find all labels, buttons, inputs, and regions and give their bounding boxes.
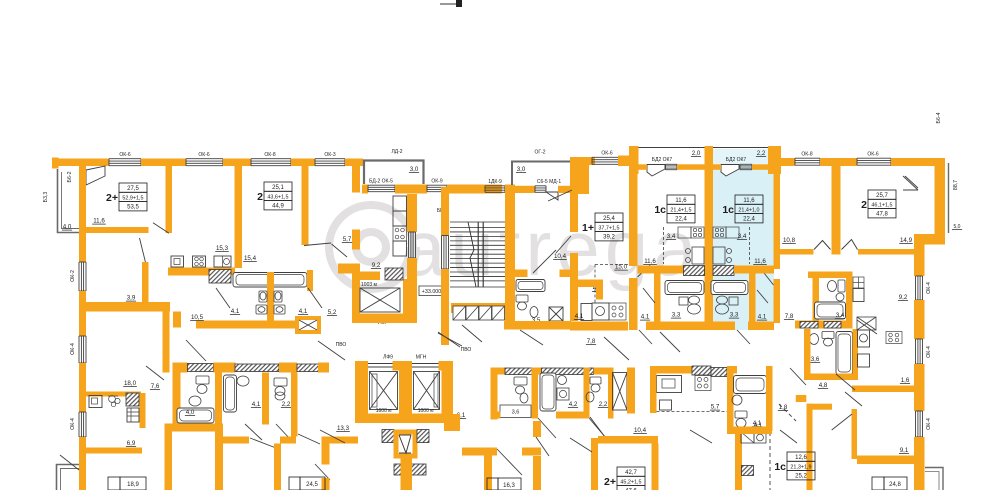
svg-text:1000 кг: 1000 кг [418, 408, 435, 414]
svg-text:С6-5 МД-1: С6-5 МД-1 [537, 179, 561, 185]
svg-text:ОК-8: ОК-8 [264, 152, 275, 158]
svg-text:3,9: 3,9 [127, 295, 136, 302]
svg-text:7,8: 7,8 [587, 338, 596, 345]
svg-text:9,2: 9,2 [899, 294, 908, 301]
svg-text:11,6: 11,6 [754, 258, 766, 265]
svg-text:ОК-6: ОК-6 [867, 152, 878, 158]
svg-text:ОК-6: ОК-6 [601, 151, 612, 157]
svg-text:46,1+1,5: 46,1+1,5 [871, 202, 892, 208]
svg-text:2,2: 2,2 [757, 150, 766, 157]
svg-text:10,4: 10,4 [554, 253, 567, 260]
svg-text:3,3: 3,3 [672, 312, 681, 319]
svg-text:4,0: 4,0 [186, 409, 195, 416]
svg-text:7,8: 7,8 [785, 313, 794, 320]
svg-text:10,5: 10,5 [191, 314, 204, 321]
svg-text:4,1: 4,1 [299, 308, 308, 315]
svg-text:21,4+1,0: 21,4+1,0 [738, 207, 759, 213]
svg-text:4,1: 4,1 [753, 420, 762, 427]
svg-text:3,4: 3,4 [836, 312, 845, 319]
svg-text:2,2: 2,2 [282, 401, 291, 408]
svg-text:25,1: 25,1 [272, 185, 284, 191]
svg-text:1с: 1с [722, 204, 734, 216]
svg-text:7,6: 7,6 [151, 383, 160, 390]
svg-text:ПВО: ПВО [336, 342, 347, 348]
svg-text:4,1: 4,1 [758, 314, 767, 321]
svg-text:ОК-6: ОК-6 [198, 152, 209, 158]
svg-text:2,2: 2,2 [599, 401, 608, 408]
svg-text:16,3: 16,3 [503, 483, 515, 489]
svg-text:27,5: 27,5 [127, 186, 139, 192]
svg-text:4,1: 4,1 [252, 401, 261, 408]
svg-text:Б6-4: Б6-4 [936, 112, 942, 123]
svg-text:5,0: 5,0 [954, 224, 961, 230]
svg-text:3,6: 3,6 [512, 410, 520, 416]
svg-text:53,5: 53,5 [127, 205, 139, 211]
svg-text:47,8: 47,8 [876, 212, 888, 218]
svg-text:4,1: 4,1 [575, 313, 584, 320]
svg-text:10,8: 10,8 [783, 237, 796, 244]
svg-text:1003 м: 1003 м [361, 282, 378, 288]
svg-text:15,4: 15,4 [244, 255, 257, 262]
svg-text:3,6: 3,6 [811, 356, 820, 363]
svg-text:21,4+1,5: 21,4+1,5 [670, 207, 691, 213]
svg-text:ОК-3: ОК-3 [324, 152, 335, 158]
svg-text:13,3: 13,3 [337, 425, 350, 432]
svg-text:4,0: 4,0 [63, 224, 72, 231]
svg-text:5,7: 5,7 [711, 404, 720, 411]
svg-text:2: 2 [257, 191, 263, 203]
svg-text:1+: 1+ [582, 222, 594, 234]
svg-text:11,6: 11,6 [675, 198, 687, 204]
svg-text:11,6: 11,6 [93, 218, 105, 225]
svg-text:44,9: 44,9 [272, 204, 284, 210]
svg-text:37,7+1,5: 37,7+1,5 [598, 225, 619, 231]
svg-text:12,6: 12,6 [795, 455, 807, 461]
svg-text:1,8: 1,8 [779, 404, 788, 411]
svg-text:25,2: 25,2 [795, 474, 807, 480]
svg-text:4,1: 4,1 [231, 308, 240, 315]
svg-text:3,0: 3,0 [410, 166, 419, 173]
svg-text:2: 2 [861, 199, 867, 211]
svg-text:1ДК-9: 1ДК-9 [488, 179, 502, 185]
svg-text:ЛФ9: ЛФ9 [383, 355, 393, 361]
svg-text:ОК-4: ОК-4 [70, 343, 76, 355]
svg-text:ПВО: ПВО [461, 347, 472, 353]
svg-text:2,0: 2,0 [692, 150, 701, 157]
svg-text:БД-2 ОК-5: БД-2 ОК-5 [369, 179, 393, 185]
svg-text:1,6: 1,6 [901, 377, 910, 384]
svg-text:ОГ-2: ОГ-2 [534, 150, 545, 156]
svg-text:88,7: 88,7 [953, 180, 959, 190]
svg-text:25,4: 25,4 [603, 216, 615, 222]
svg-text:ЛД-2: ЛД-2 [391, 149, 402, 155]
svg-text:9,1: 9,1 [900, 447, 909, 454]
svg-text:БД2 ОК7: БД2 ОК7 [652, 157, 673, 163]
svg-text:9,2: 9,2 [372, 262, 381, 269]
svg-text:18,0: 18,0 [124, 380, 137, 387]
svg-text:ОК-4: ОК-4 [926, 418, 932, 430]
svg-text:МГН: МГН [416, 355, 427, 361]
svg-text:ОК-4: ОК-4 [926, 346, 932, 358]
svg-text:24,5: 24,5 [306, 482, 318, 488]
svg-text:21,3+1,9: 21,3+1,9 [790, 464, 811, 470]
svg-text:5,2: 5,2 [328, 309, 337, 316]
svg-text:45,2+1,5: 45,2+1,5 [620, 479, 641, 485]
svg-text:11,6: 11,6 [644, 258, 656, 265]
svg-text:3,3: 3,3 [730, 312, 739, 319]
svg-text:ОК-9: ОК-9 [431, 179, 442, 185]
svg-text:3,0: 3,0 [517, 166, 526, 173]
svg-text:4,8: 4,8 [819, 382, 828, 389]
svg-text:БД2 ОК7: БД2 ОК7 [726, 157, 747, 163]
svg-text:39,2: 39,2 [603, 235, 615, 241]
svg-text:2+: 2+ [106, 192, 118, 204]
svg-text:ОК-4: ОК-4 [926, 282, 932, 294]
svg-text:Б3,3: Б3,3 [43, 192, 49, 203]
svg-text:+33.000: +33.000 [422, 289, 442, 295]
svg-text:ОК-8: ОК-8 [801, 152, 812, 158]
svg-text:ОК-6: ОК-6 [119, 152, 130, 158]
svg-text:6,9: 6,9 [127, 440, 136, 447]
svg-text:14,9: 14,9 [900, 237, 913, 244]
svg-text:18,9: 18,9 [127, 482, 139, 488]
svg-text:ОК-2: ОК-2 [70, 270, 76, 282]
svg-text:22,4: 22,4 [675, 217, 687, 223]
svg-text:1с: 1с [774, 461, 786, 473]
svg-text:25,7: 25,7 [876, 193, 888, 199]
svg-text:24,8: 24,8 [889, 482, 901, 488]
svg-text:1600 кг: 1600 кг [376, 408, 393, 414]
svg-text:43,6+1,5: 43,6+1,5 [267, 194, 288, 200]
svg-text:5,7: 5,7 [343, 236, 352, 243]
svg-text:4,2: 4,2 [569, 401, 578, 408]
svg-text:Б6-2: Б6-2 [67, 171, 73, 182]
svg-text:3,4: 3,4 [667, 233, 676, 240]
svg-text:15,3: 15,3 [216, 245, 229, 252]
svg-text:11,6: 11,6 [743, 198, 755, 204]
svg-text:3,4: 3,4 [738, 233, 747, 240]
svg-text:22,4: 22,4 [743, 217, 755, 223]
svg-text:42,7: 42,7 [625, 470, 637, 476]
svg-text:ОК-4: ОК-4 [70, 418, 76, 430]
svg-text:1с: 1с [654, 204, 666, 216]
svg-text:4,1: 4,1 [641, 314, 650, 321]
svg-text:52,9+1,5: 52,9+1,5 [122, 195, 143, 201]
svg-text:2+: 2+ [604, 476, 616, 488]
svg-text:10,4: 10,4 [634, 427, 647, 434]
